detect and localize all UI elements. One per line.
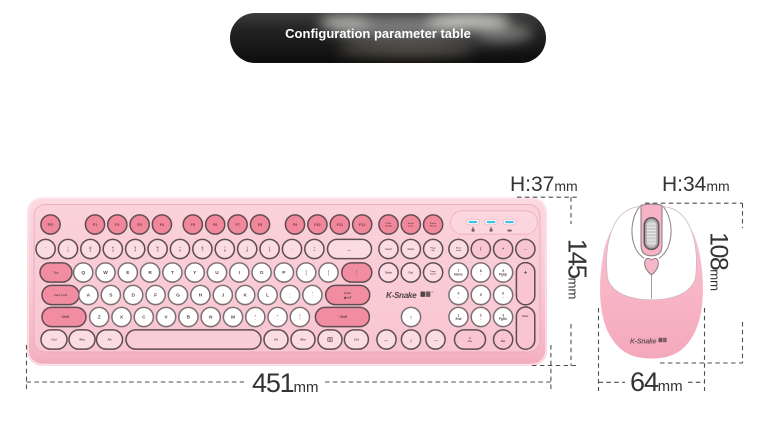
- svg-text:→: →: [432, 337, 439, 344]
- svg-text:64mm: 64mm: [630, 367, 683, 397]
- svg-text:End: End: [455, 317, 461, 321]
- svg-text:Enter: Enter: [522, 315, 528, 318]
- svg-text:Win: Win: [79, 338, 85, 342]
- svg-text:]: ]: [328, 272, 329, 276]
- svg-text:T: T: [171, 270, 174, 276]
- svg-text:F10: F10: [314, 223, 320, 227]
- svg-text:SysRq: SysRq: [385, 225, 392, 227]
- svg-text:Z: Z: [98, 315, 101, 321]
- svg-text:C: C: [142, 315, 146, 321]
- svg-text:↑ Shift: ↑ Shift: [338, 315, 348, 319]
- svg-text:145mm: 145mm: [563, 239, 593, 300]
- svg-text:→: →: [502, 295, 505, 299]
- svg-text:B: B: [187, 315, 191, 321]
- svg-text:=: =: [314, 249, 316, 253]
- svg-text:W: W: [103, 270, 108, 276]
- svg-text:F12: F12: [359, 223, 365, 227]
- svg-text:J: J: [221, 293, 224, 299]
- svg-text:F8: F8: [258, 223, 262, 227]
- svg-text:F6: F6: [213, 223, 217, 227]
- svg-text:L: L: [266, 293, 269, 299]
- svg-text:Home: Home: [408, 249, 415, 251]
- svg-text:F: F: [154, 293, 157, 299]
- svg-text:Caps Lock: Caps Lock: [54, 293, 68, 297]
- svg-text:Break: Break: [430, 225, 437, 227]
- svg-text:F3: F3: [137, 223, 141, 227]
- svg-text:Insert: Insert: [385, 248, 391, 251]
- svg-text:N: N: [209, 315, 213, 321]
- svg-text:O: O: [260, 270, 264, 276]
- svg-text:A: A: [87, 293, 91, 299]
- svg-text:H: H: [199, 293, 203, 299]
- svg-text:Tab: Tab: [53, 271, 58, 275]
- svg-text:Alt: Alt: [108, 338, 112, 342]
- svg-text:`: `: [45, 249, 46, 253]
- svg-text:PgDn: PgDn: [499, 317, 507, 321]
- svg-text:Alt: Alt: [274, 338, 278, 342]
- svg-text:Q: Q: [81, 270, 85, 276]
- svg-text:F11: F11: [337, 223, 343, 227]
- svg-text:Del: Del: [501, 339, 506, 343]
- svg-text:K: K: [243, 293, 247, 299]
- svg-text:←: ←: [346, 246, 352, 253]
- svg-text:Lock: Lock: [456, 250, 462, 252]
- svg-text:↑ Shift: ↑ Shift: [59, 315, 69, 319]
- svg-text:←: ←: [383, 337, 390, 344]
- svg-text:Ctrl: Ctrl: [354, 338, 359, 342]
- svg-text:Lock: Lock: [408, 225, 414, 227]
- svg-text:K-Snake: K-Snake: [630, 339, 657, 346]
- svg-text:™: ™: [431, 292, 434, 295]
- svg-text:PgUp: PgUp: [499, 273, 507, 277]
- svg-text:R: R: [148, 270, 152, 276]
- svg-text:M: M: [231, 315, 235, 321]
- svg-text:Home: Home: [454, 273, 463, 277]
- svg-text:↑: ↑: [409, 314, 412, 321]
- svg-text:Ctrl: Ctrl: [51, 338, 56, 342]
- svg-text:H:37mm: H:37mm: [510, 173, 578, 196]
- svg-text:F1: F1: [93, 223, 97, 227]
- svg-text:*: *: [502, 247, 504, 253]
- svg-text:+: +: [524, 270, 528, 277]
- svg-text:D: D: [131, 293, 135, 299]
- svg-text:Ins: Ins: [468, 339, 472, 343]
- svg-text:Down: Down: [430, 273, 437, 275]
- svg-text:-: -: [292, 249, 293, 253]
- svg-text:Delete: Delete: [385, 271, 393, 274]
- svg-text:F9: F9: [293, 223, 297, 227]
- svg-text:H:34mm: H:34mm: [662, 173, 730, 196]
- svg-text:F2: F2: [115, 223, 119, 227]
- svg-text:K-Snake: K-Snake: [386, 291, 417, 300]
- svg-text:Configuration parameter table: Configuration parameter table: [285, 26, 471, 41]
- svg-text:F7: F7: [235, 223, 239, 227]
- svg-text:F5: F5: [191, 223, 195, 227]
- svg-text:←: ←: [457, 295, 460, 299]
- svg-text:;: ;: [290, 295, 291, 299]
- svg-text:Win: Win: [300, 338, 306, 342]
- svg-text:5: 5: [480, 293, 482, 297]
- svg-text:U: U: [215, 270, 219, 276]
- svg-text:End: End: [409, 272, 414, 274]
- svg-text:↓: ↓: [409, 337, 412, 344]
- svg-text:G: G: [176, 293, 180, 299]
- svg-text:[: [: [306, 272, 307, 276]
- svg-text:451mm: 451mm: [252, 368, 318, 398]
- svg-text:Esc: Esc: [48, 223, 54, 227]
- svg-text:Enter: Enter: [344, 291, 351, 295]
- svg-text:108mm: 108mm: [705, 232, 733, 291]
